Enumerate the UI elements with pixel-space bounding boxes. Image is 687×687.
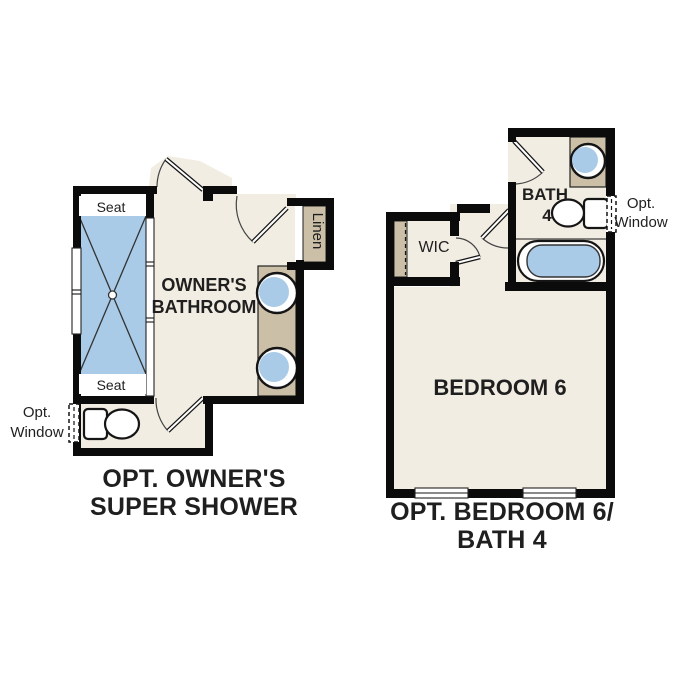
seat-bottom-label: Seat bbox=[97, 377, 126, 393]
opt-window-label-line2: Window bbox=[10, 424, 64, 441]
opt-window-label-line1: Opt. bbox=[627, 195, 655, 212]
sink-bowl bbox=[572, 147, 598, 173]
linen-label: Linen bbox=[309, 213, 326, 250]
plan-title-line1: OPT. BEDROOM 6/ bbox=[390, 498, 614, 526]
bath4-vanity bbox=[570, 137, 606, 187]
super-shower bbox=[79, 216, 146, 374]
floorplan-canvas: Seat Seat OWNER'S BATHROOM Linen Opt. Wi… bbox=[0, 0, 687, 687]
wic-label: WIC bbox=[418, 239, 449, 256]
bedroom-window bbox=[523, 488, 576, 498]
room-fills bbox=[394, 137, 606, 489]
bathtub bbox=[512, 239, 606, 281]
shower-drain-icon bbox=[109, 291, 117, 299]
sink-bowl bbox=[259, 352, 289, 382]
toilet-tank bbox=[84, 409, 107, 439]
bath-label-line2: 4 bbox=[542, 206, 552, 225]
bedroom6-bath4-plan: BATH 4 WIC Opt. Window BEDROOM 6 OPT. BE… bbox=[386, 128, 668, 554]
tub-basin bbox=[527, 245, 600, 277]
toilet-tank bbox=[584, 199, 608, 228]
room-label-line1: OWNER'S bbox=[161, 275, 246, 295]
opt-window-label-line1: Opt. bbox=[23, 404, 51, 421]
room-label-line2: BATHROOM bbox=[152, 297, 257, 317]
bath-label-line1: BATH bbox=[522, 185, 568, 204]
bedroom-label: BEDROOM 6 bbox=[433, 375, 566, 400]
plan-title-line1: OPT. OWNER'S bbox=[102, 465, 285, 493]
seat-top-label: Seat bbox=[97, 199, 126, 215]
owners-super-shower-plan: Seat Seat OWNER'S BATHROOM Linen Opt. Wi… bbox=[10, 156, 334, 521]
toilet-bowl bbox=[105, 410, 139, 439]
opt-window-label-line2: Window bbox=[614, 214, 668, 231]
bedroom-window bbox=[415, 488, 468, 498]
wic-shelf bbox=[394, 221, 407, 277]
plan-title-line2: SUPER SHOWER bbox=[90, 493, 298, 521]
plan-title-line2: BATH 4 bbox=[457, 526, 547, 554]
shower-window bbox=[72, 248, 81, 334]
toilet bbox=[84, 409, 139, 439]
optional-window bbox=[69, 404, 79, 442]
double-vanity bbox=[257, 266, 297, 396]
sink-bowl bbox=[259, 277, 289, 307]
